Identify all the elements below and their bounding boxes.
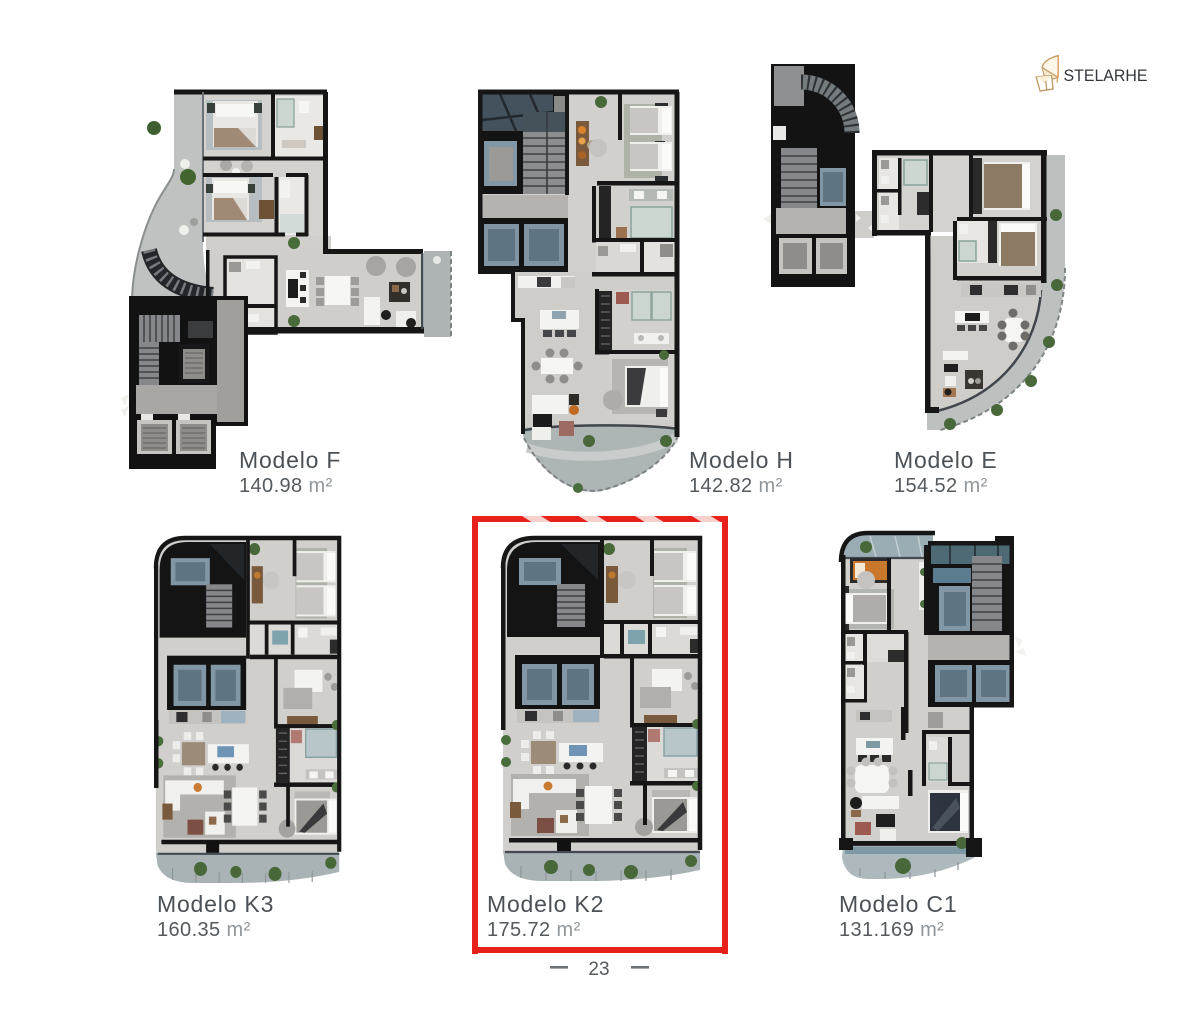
svg-text:Modelo K3: Modelo K3 [157,891,274,917]
svg-text:140.98 m²: 140.98 m² [239,475,333,497]
svg-text:142.82 m²: 142.82 m² [689,475,783,497]
svg-text:Modelo E: Modelo E [894,447,998,473]
svg-text:STELARHE: STELARHE [1064,67,1148,85]
svg-text:175.72 m²: 175.72 m² [487,919,581,941]
svg-text:23: 23 [588,959,609,980]
svg-text:Modelo C1: Modelo C1 [839,891,957,917]
svg-text:Modelo H: Modelo H [689,447,794,473]
svg-text:131.169 m²: 131.169 m² [839,919,944,941]
svg-text:154.52 m²: 154.52 m² [894,475,988,497]
svg-text:Modelo K2: Modelo K2 [487,891,604,917]
svg-text:160.35 m²: 160.35 m² [157,919,251,941]
svg-text:Modelo F: Modelo F [239,447,341,473]
